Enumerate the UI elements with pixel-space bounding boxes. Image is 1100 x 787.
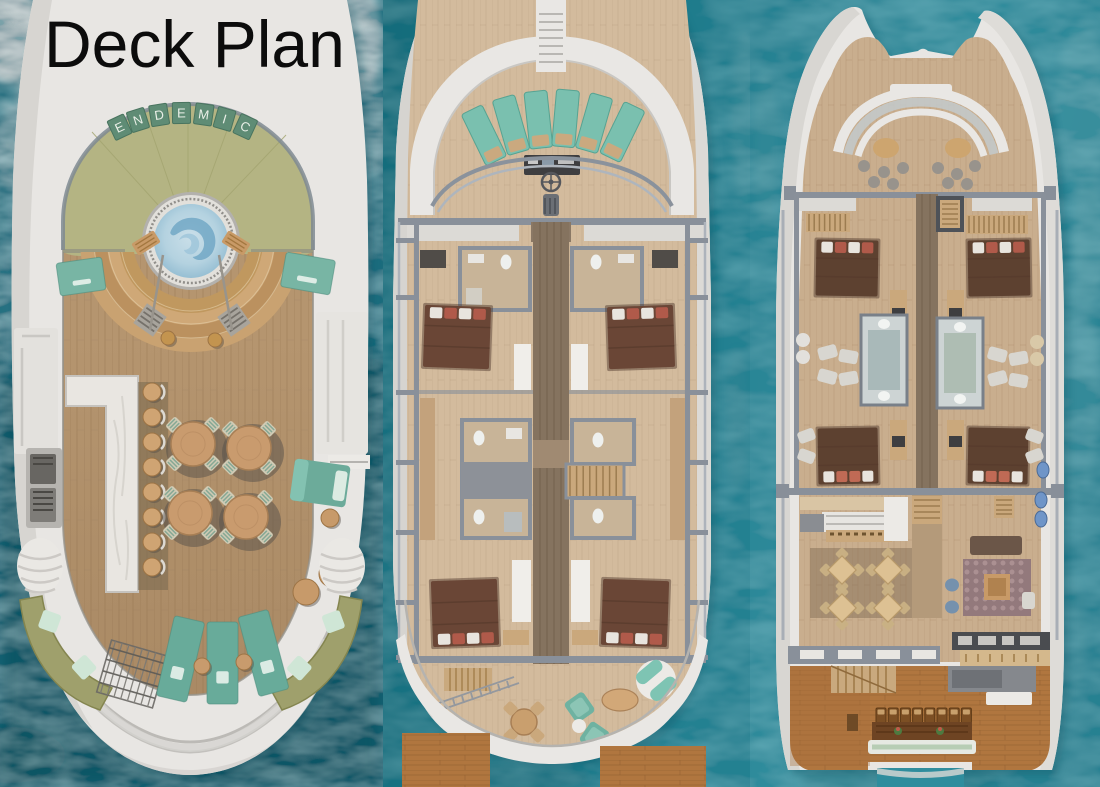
svg-text:E: E [177,105,186,120]
svg-text:Deck Plan: Deck Plan [44,7,345,81]
svg-text:M: M [197,106,210,122]
